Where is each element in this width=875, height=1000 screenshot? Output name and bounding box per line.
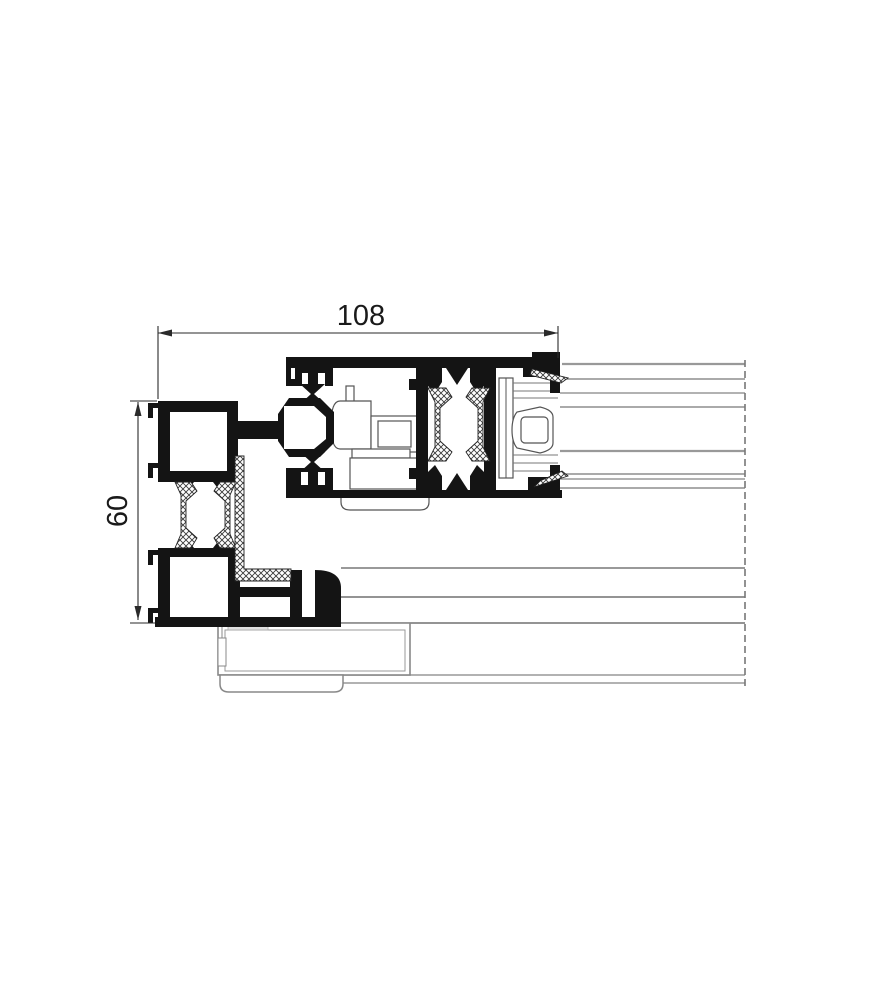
roller-carriage	[350, 458, 417, 489]
roller-tray	[341, 498, 429, 510]
sliding-panel-lines	[560, 364, 745, 488]
profile-section-drawing: 108 60	[0, 0, 875, 1000]
thermal-bar	[175, 482, 197, 548]
thermal-bar	[428, 388, 452, 461]
dimension-height: 60	[102, 401, 157, 623]
glazing-channel	[499, 378, 558, 478]
frame-nose	[315, 570, 341, 627]
lock-cylinder	[331, 401, 371, 449]
brush-seal	[300, 384, 325, 404]
sill-bottom-tray	[220, 675, 343, 692]
drawing-canvas: 108 60	[0, 0, 875, 1000]
sill-assembly	[218, 623, 410, 692]
glazing-leg-gasket	[235, 456, 291, 581]
thermal-bar	[214, 482, 236, 548]
frame-bottom-chamber	[158, 548, 240, 627]
glazing-clamp	[512, 407, 553, 453]
sash-divider	[416, 368, 428, 490]
interlock-octagon	[278, 398, 334, 457]
dimension-height-label: 60	[102, 495, 134, 527]
dimension-width-label: 108	[337, 300, 385, 332]
frame-top-chamber	[158, 401, 278, 482]
dimension-width: 108	[158, 300, 558, 399]
sash-top-rail	[286, 357, 560, 368]
sash-bottom-rail	[286, 490, 562, 498]
